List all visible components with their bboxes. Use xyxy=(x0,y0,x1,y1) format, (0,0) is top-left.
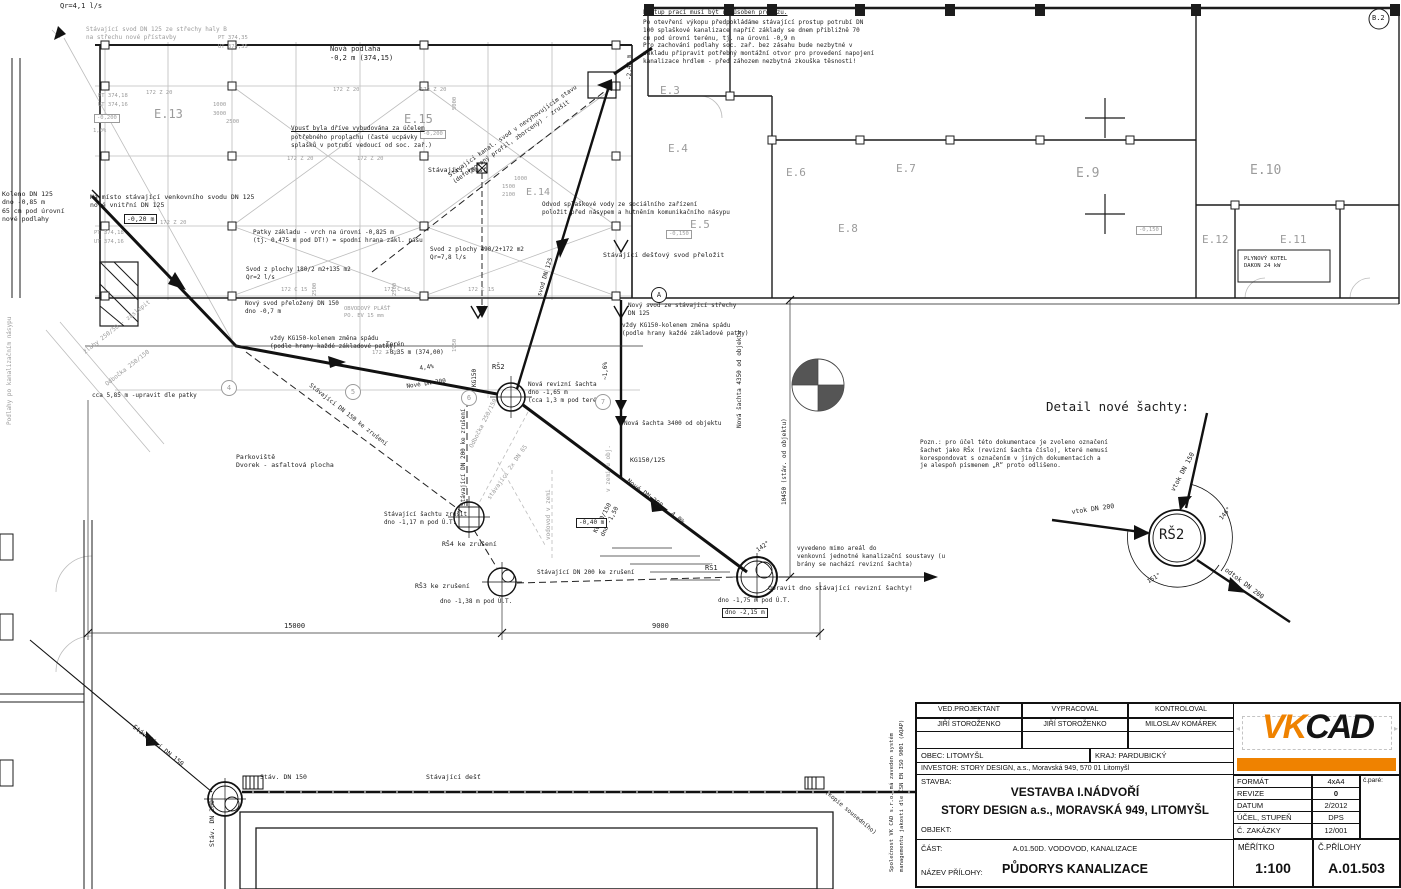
tb-priloha-label: Č.PŘÍLOHY xyxy=(1318,843,1361,852)
survey-point-symbol xyxy=(792,359,844,411)
plan-label: Koleno DN 125 dno -0,85 m 65 cm pod úrov… xyxy=(2,190,65,224)
plan-label: 172 Z 20 xyxy=(333,87,360,94)
tb-meritko-value: 1:100 xyxy=(1234,860,1312,876)
tb-empty-cell xyxy=(916,731,1022,749)
plan-label: 10450 (stáv. od objektu) xyxy=(781,418,789,505)
room-label-e6: E.6 xyxy=(786,166,806,180)
plan-label: ~1,6% xyxy=(602,362,610,380)
tb-logo-cell: ◂ ▸ VKCAD xyxy=(1233,703,1400,775)
plan-label: 15000 xyxy=(284,622,305,631)
plan-label: 1,0% xyxy=(93,128,106,135)
tb-zakazka-value: 12/001 xyxy=(1312,823,1360,839)
tb-meritko-cell: MĚŘÍTKO 1:100 xyxy=(1233,839,1313,887)
tb-vypracoval-header: VYPRACOVAL xyxy=(1022,703,1128,718)
plan-label: vyvedeno mimo areál do venkovní jednotné… xyxy=(797,545,945,568)
plan-label: 172 Z 20 xyxy=(420,87,447,94)
plan-label: -0,40 m xyxy=(576,518,607,528)
plan-label: UT 374,16 xyxy=(98,102,128,109)
tb-priloha-value: A.01.503 xyxy=(1314,860,1399,876)
construction-grid xyxy=(46,30,1370,672)
plan-label: 172 Z 20 xyxy=(160,220,187,227)
plan-label: 172 Z 20 xyxy=(357,156,384,163)
tb-ved-projektant-name: JIŘÍ STOROŽENKO xyxy=(916,718,1022,732)
room-label-e8: E.8 xyxy=(838,222,858,236)
note-postup-body: Po otevření výkopu předpokládáme stávají… xyxy=(643,19,874,66)
room-label-e4: E.4 xyxy=(668,142,688,156)
logo-orange-bar xyxy=(1237,758,1396,771)
grid-bubble-5: 5 xyxy=(345,384,361,400)
tb-pare: č.paré: xyxy=(1360,775,1400,839)
manhole-label-rs1: RŠ1 xyxy=(705,564,718,573)
manhole-label-rs4: RŠ4 ke zrušení xyxy=(442,540,497,548)
tb-empty-cell xyxy=(1128,731,1234,749)
tb-priloha-cell: Č.PŘÍLOHY A.01.503 xyxy=(1313,839,1400,887)
tb-zakazka-label: Č. ZAKÁZKY xyxy=(1233,823,1312,839)
plan-label: Svod z plochy 490/2+172 m2 Qr=7,8 l/s xyxy=(430,246,524,262)
plan-label: Stávající DN 200 ke zrušení xyxy=(537,569,635,577)
plan-label: Qr=4,1 l/s xyxy=(60,2,102,11)
manhole-label-rs3: RŠ3 ke zrušení xyxy=(415,582,470,590)
plan-label: PT 374,18 xyxy=(98,93,128,100)
plan-label: Parkoviště Dvorek - asfaltová plocha xyxy=(236,453,334,470)
grid-label-b2: B.2 xyxy=(1372,14,1385,23)
plan-label: Stávající svod DN 125 ze střechy haly B … xyxy=(86,26,227,42)
plan-label: 3000 xyxy=(213,111,226,118)
flow-arrows xyxy=(54,26,938,746)
plan-label: Stáv. DN 200 xyxy=(208,800,216,847)
tb-vypracoval-name: JIŘÍ STOROŽENKO xyxy=(1022,718,1128,732)
note-postup-title: Postup prací musí být uzpůsoben provozu. xyxy=(643,9,788,17)
room-label-e14: E.14 xyxy=(526,186,550,199)
tb-kraj: KRAJ: PARDUBICKÝ xyxy=(1090,748,1234,763)
plan-label: -0,20 m xyxy=(124,214,157,224)
tb-cast-section: ČÁST: A.01.50D. VODOVOD, KANALIZACE NÁZE… xyxy=(916,839,1234,887)
plan-label: 2500 xyxy=(392,283,399,296)
plan-label: 1500 xyxy=(502,184,515,191)
plan-label: Stávající šachtu zrušit dno -1,17 m pod … xyxy=(384,511,467,527)
room-label-e3: E.3 xyxy=(660,84,680,98)
room-label-e10: E.10 xyxy=(1250,163,1281,180)
plan-label: cca 5,85 m -upravit dle patky xyxy=(92,392,197,400)
tb-ved-projektant-header: VED.PROJEKTANT xyxy=(916,703,1022,718)
tb-kontroloval-header: KONTROLOVAL xyxy=(1128,703,1234,718)
plan-label: Podlahy po kanalizačním násypu xyxy=(6,317,14,425)
column-markers xyxy=(101,41,1344,300)
plan-label: dno -2,15 m xyxy=(722,608,768,618)
plan-label: Stávající DN 200 ke zrušení xyxy=(460,408,468,506)
tb-stavba-line1: VESTAVBA I.NÁDVOŘÍ xyxy=(917,785,1233,799)
vkcad-logo: VKCAD xyxy=(1262,708,1373,747)
plan-label: Na místo stávající venkovního svodu DN 1… xyxy=(90,193,254,210)
room-label-e9: E.9 xyxy=(1076,166,1099,183)
tb-nazev-value: PŮDORYS KANALIZACE xyxy=(917,862,1233,876)
detail-shaft-label: RŠ2 xyxy=(1159,526,1184,544)
plan-label: Svod z plochy 180/2 m2+135 m2 Qr=2 l/s xyxy=(246,266,351,282)
tb-cast-value: A.01.50D. VODOVOD, KANALIZACE xyxy=(917,844,1233,853)
plan-label: 172 Z 20 xyxy=(287,156,314,163)
plan-label: Vpusť byla dříve vybudována za účelem xyxy=(291,125,425,133)
grid-bubble-a: A xyxy=(651,287,667,303)
grid-bubble-7: 7 xyxy=(595,394,611,410)
manhole-label-rs2: RŠ2 xyxy=(492,363,505,372)
plan-label: v zemi u obj. xyxy=(605,445,613,492)
plan-label: vždy KG150-kolenem změna spádu (podle hr… xyxy=(622,322,748,338)
plan-label: KG150/125 xyxy=(630,456,665,464)
plan-label: dno -1,75 m pod Ú.T. xyxy=(718,597,790,605)
room-label-e7: E.7 xyxy=(896,162,916,176)
tb-stavba-section: STAVBA: VESTAVBA I.NÁDVOŘÍ STORY DESIGN … xyxy=(916,774,1234,840)
plan-label: 172 C 15 xyxy=(468,287,495,294)
plan-label: Nový svod přeložený DN 150 dno -0,7 m xyxy=(245,300,339,316)
plan-label: PLYNOVÝ KOTEL DAKON 24 kW xyxy=(1244,256,1287,270)
plan-label: 172 C 15 xyxy=(281,287,308,294)
plan-label: 5000 xyxy=(452,97,459,110)
plan-label: Stávající dešť xyxy=(426,773,481,781)
detail-note: Pozn.: pro účel této dokumentace je zvol… xyxy=(920,439,1108,470)
plan-label: -2,43 m xyxy=(626,55,634,80)
plan-label: vždy KG150-kolenem změna spádu (podle hr… xyxy=(270,335,396,351)
plan-label: 1000 xyxy=(514,176,527,183)
grid-bubble-6: 6 xyxy=(461,390,477,406)
plan-label: -0,200 xyxy=(94,114,120,123)
plan-label: KG150 xyxy=(471,369,479,387)
tb-stavba-line2: STORY DESIGN a.s., MORAVSKÁ 949, LITOMYŠ… xyxy=(917,805,1233,817)
room-label-e11: E.11 xyxy=(1280,233,1307,247)
plan-label: Nový svod ze stávající střechy DN 125 xyxy=(628,302,736,318)
detail-title: Detail nové šachty: xyxy=(1046,399,1189,415)
plan-label: 2500 xyxy=(226,119,239,126)
plan-label: Stávající dešťový svod přeložit xyxy=(603,251,724,259)
drawing-canvas: Qr=4,1 l/sStávající svod DN 125 ze střec… xyxy=(0,0,1401,889)
plan-label: Stáv. DN 150 xyxy=(260,773,307,781)
plan-label: Opravit dno stávající revizní šachty! xyxy=(768,584,913,592)
plan-label: 2100 xyxy=(502,192,515,199)
plan-label: 1950 xyxy=(452,339,459,352)
plan-label: Nová šachta 4350 od objektu xyxy=(736,330,744,428)
plan-label: Nová podlaha -0,2 m (374,15) xyxy=(330,45,393,63)
plan-label: dno -1,38 m pod Ú.T. xyxy=(440,598,512,606)
tb-empty-cell xyxy=(1022,731,1128,749)
room-label-e12: E.12 xyxy=(1202,233,1229,247)
plan-label: vodovod v zemi xyxy=(545,489,553,540)
plan-label: Nová šachta 3400 od objektu xyxy=(624,420,722,428)
grate-hatches xyxy=(243,776,824,789)
plan-label: PT 374,35 xyxy=(218,35,248,42)
plan-label: Patky základu - vrch na úrovni -0,825 m … xyxy=(253,229,423,245)
logo-right-arrow-icon: ▸ xyxy=(1394,724,1398,733)
plan-label: PT 374,18 xyxy=(94,230,124,237)
plan-label: -0,150 xyxy=(1136,226,1162,235)
tb-meritko-label: MĚŘÍTKO xyxy=(1238,843,1274,852)
plan-label: potřebného proplachu (časté ucpávky spla… xyxy=(291,134,432,150)
plan-label: UT 374,16 xyxy=(94,239,124,246)
plan-label: UT 374,35 xyxy=(218,44,248,51)
room-label-e13: E.13 xyxy=(154,107,183,123)
tb-obec: OBEC: LITOMYŠL xyxy=(916,748,1090,763)
plan-label: Společnost VK CAD s.r.o. má zaveden syst… xyxy=(889,733,896,872)
room-label-e5: E.5 xyxy=(690,218,710,232)
plan-label: OBVODOVÝ PLÁŠŤ PO. EV 15 mm xyxy=(344,306,390,320)
logo-left-arrow-icon: ◂ xyxy=(1236,724,1240,733)
grid-bubble-4: 4 xyxy=(221,380,237,396)
plan-label: 172 Z 20 xyxy=(146,90,173,97)
plan-label: -0,150 xyxy=(666,230,692,239)
plan-label: 1000 xyxy=(213,102,226,109)
plan-label: Odvod splaškové vody ze sociálního zaříz… xyxy=(542,201,730,217)
plan-label: 9000 xyxy=(652,622,669,631)
plan-label: managementu jakosti dle ČSN EN ISO 9001 … xyxy=(899,720,906,872)
tb-kontroloval-name: MILOSLAV KOMÁREK xyxy=(1128,718,1234,732)
plan-label: Terén -0,35 m (374,00) xyxy=(386,341,444,357)
tb-objekt-label: OBJEKT: xyxy=(921,825,951,834)
plan-label: 2500 xyxy=(312,283,319,296)
